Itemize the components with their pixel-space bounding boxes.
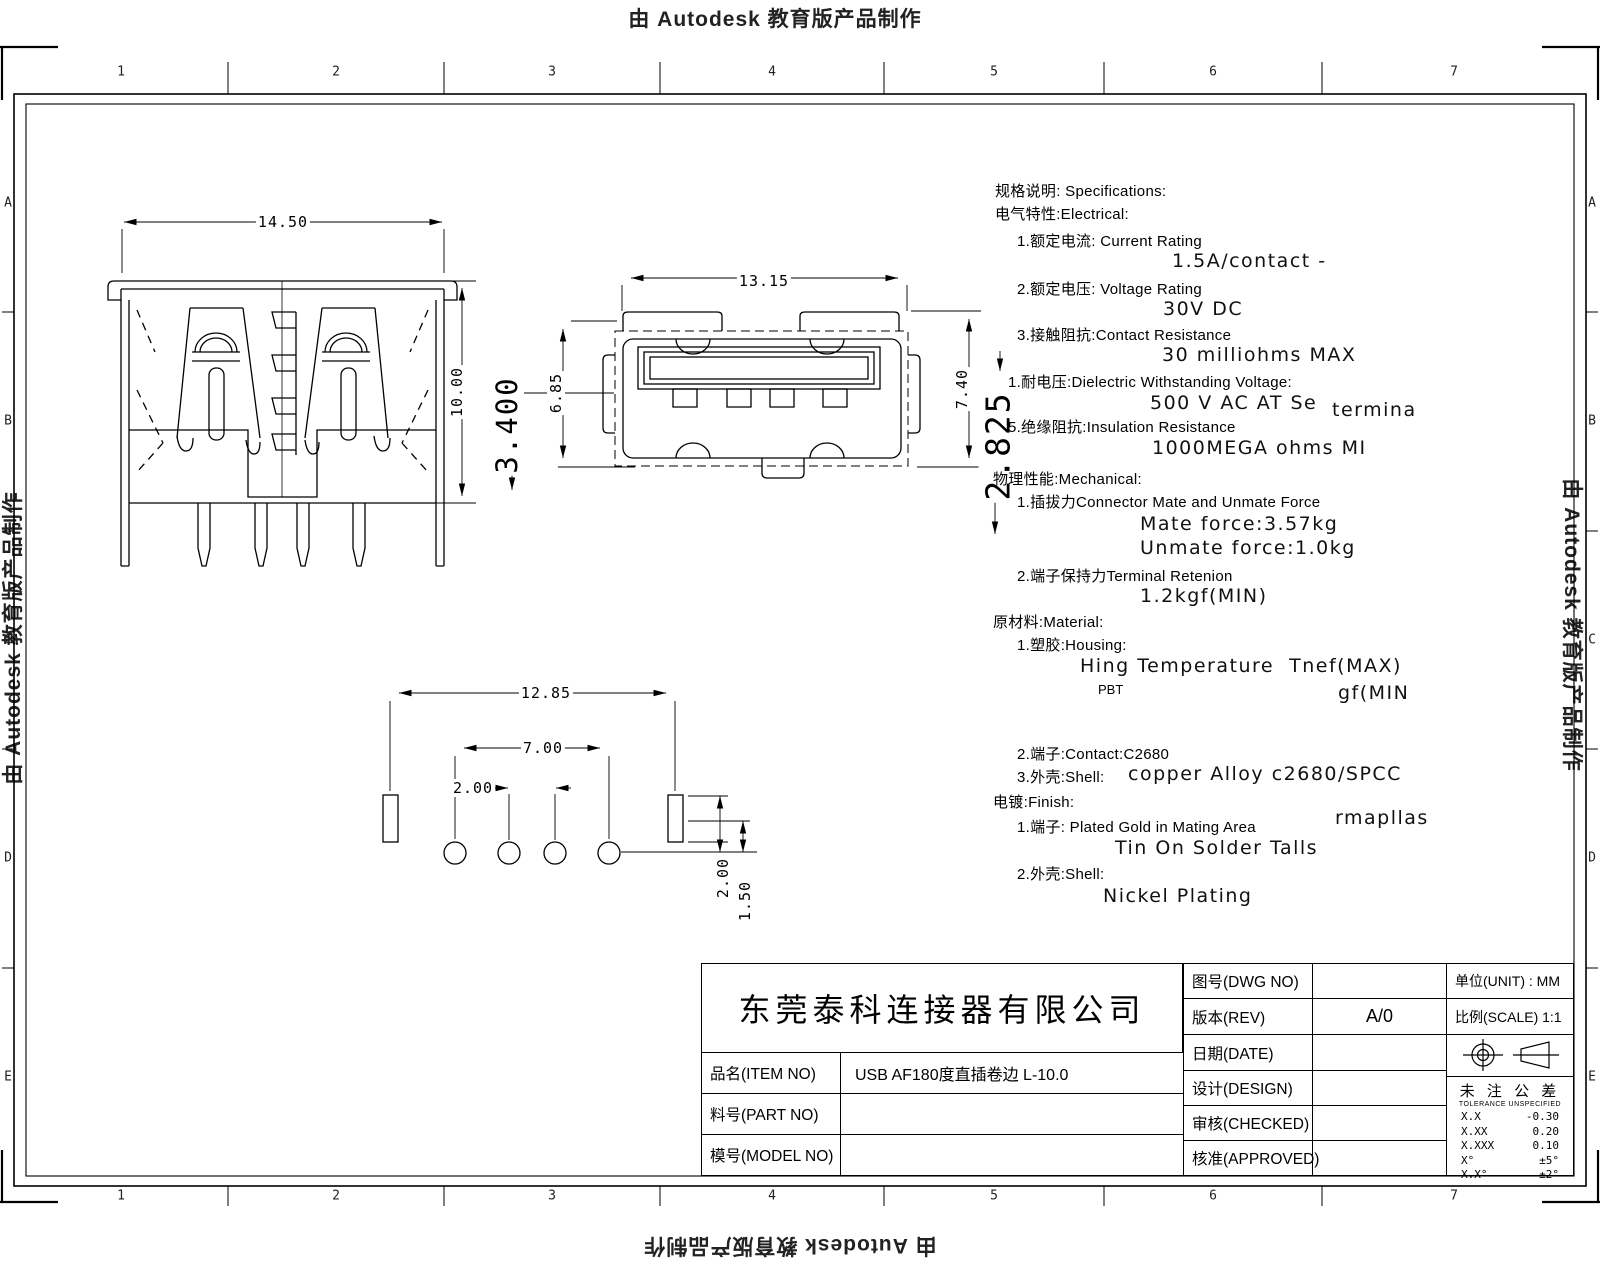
part-no-label-cell: 料号(PART NO)	[701, 1093, 841, 1135]
tolerance-row: X.X-0.30	[1447, 1110, 1573, 1125]
model-no-label: 模号(MODEL NO)	[702, 1144, 833, 1166]
spec-line: 2.外壳:Shell:	[1017, 863, 1105, 884]
checked-label-cell: 审核(CHECKED)	[1183, 1105, 1313, 1141]
spec-line: 1.额定电流: Current Rating	[1017, 230, 1202, 251]
tolerance-subtitle: TOLERANCE UNSPECIFIED	[1447, 1101, 1573, 1108]
dim-front-width: 14.50	[256, 213, 310, 231]
date-value	[1312, 1034, 1447, 1071]
part-no-value	[840, 1093, 1184, 1135]
spec-line: 5.绝缘阻抗:Insulation Resistance	[1008, 416, 1236, 437]
dimension-lines	[122, 222, 1000, 852]
model-no-label-cell: 模号(MODEL NO)	[701, 1134, 841, 1176]
spec-mechanical-header: 物理性能:Mechanical:	[993, 468, 1142, 489]
spec-value: PBT	[1098, 682, 1123, 697]
zone-col-top-7: 7	[1450, 65, 1458, 80]
footprint-view	[383, 795, 683, 864]
dim-front-height: 10.00	[448, 365, 466, 419]
zone-col-top-5: 5	[990, 65, 998, 80]
item-no-label-cell: 品名(ITEM NO)	[701, 1052, 841, 1094]
tolerance-cell: 未 注 公 差 TOLERANCE UNSPECIFIED X.X-0.30 X…	[1446, 1076, 1574, 1176]
zone-row-right-d: D	[1588, 851, 1596, 866]
dim-face-height-right: 7.40	[953, 367, 971, 411]
spec-line: 1.端子: Plated Gold in Mating Area	[1017, 816, 1256, 837]
checked-label: 审核(CHECKED)	[1184, 1112, 1309, 1134]
design-value	[1312, 1070, 1447, 1106]
zone-row-left-c: C	[4, 633, 12, 648]
spec-value-fragment: termina	[1332, 399, 1417, 421]
dwg-no-label: 图号(DWG NO)	[1184, 970, 1299, 992]
spec-line: 2.额定电压: Voltage Rating	[1017, 278, 1202, 299]
company-name: 东莞泰科连接器有限公司	[701, 963, 1183, 1053]
spec-value: 500 V AC AT Se	[1150, 392, 1317, 414]
cad-drawing-page: { "banner": { "text": "由 Autodesk 教育版产品制…	[0, 0, 1600, 1280]
spec-value-fragment: rmapllas	[1335, 807, 1429, 829]
tolerance-row: X°±5°	[1447, 1154, 1573, 1169]
spec-line: 3.接触阻抗:Contact Resistance	[1017, 324, 1231, 345]
design-label-cell: 设计(DESIGN)	[1183, 1070, 1313, 1106]
approved-value	[1312, 1140, 1447, 1176]
zone-col-bottom-7: 7	[1450, 1189, 1458, 1204]
scale-label: 比例(SCALE) 1:1	[1447, 1007, 1562, 1027]
spec-title: 规格说明: Specifications:	[995, 180, 1166, 201]
approved-label-cell: 核准(APPROVED)	[1183, 1140, 1313, 1176]
spec-line: 1.插拔力Connector Mate and Unmate Force	[1017, 491, 1320, 512]
dim-face-height-left: 6.85	[547, 371, 565, 415]
spec-line: 1.塑胶:Housing:	[1017, 634, 1127, 655]
tolerance-title: 未 注 公 差	[1447, 1080, 1573, 1101]
design-label: 设计(DESIGN)	[1184, 1077, 1293, 1099]
zone-col-top-4: 4	[768, 65, 776, 80]
unit-label: 单位(UNIT) : MM	[1447, 971, 1560, 991]
zone-row-left-d: D	[4, 851, 12, 866]
model-no-value	[840, 1134, 1184, 1176]
tolerance-row: X.XXX0.10	[1447, 1139, 1573, 1154]
spec-electrical-header: 电气特性:Electrical:	[995, 203, 1129, 224]
zone-col-top-3: 3	[548, 65, 556, 80]
front-view	[108, 281, 457, 566]
spec-value: Nickel Plating	[1103, 885, 1252, 907]
zone-col-top-2: 2	[332, 65, 340, 80]
scale-cell: 比例(SCALE) 1:1	[1446, 998, 1574, 1035]
spec-line: 2.端子:Contact:C2680	[1017, 743, 1169, 764]
spec-value: Unmate force:1.0kg	[1140, 537, 1356, 559]
zone-col-bottom-1: 1	[117, 1189, 125, 1204]
part-no-label: 料号(PART NO)	[702, 1103, 819, 1125]
tolerance-row: X.XX0.20	[1447, 1125, 1573, 1140]
projection-symbol-cell	[1446, 1034, 1574, 1077]
projection-symbol-icon	[1447, 1035, 1567, 1075]
date-label: 日期(DATE)	[1184, 1042, 1274, 1064]
zone-col-bottom-3: 3	[548, 1189, 556, 1204]
spec-value: Hing Temperature Tnef(MAX)	[1080, 655, 1402, 677]
tolerance-row: X.X°±2°	[1447, 1168, 1573, 1183]
item-no-value: USB AF180度直插卷边 L-10.0	[840, 1052, 1184, 1094]
dim-front-aux: 3.400	[490, 374, 524, 475]
zone-row-right-e: E	[1588, 1070, 1596, 1085]
zone-col-bottom-6: 6	[1209, 1189, 1217, 1204]
dim-pin-pitch: 2.00	[451, 779, 495, 797]
zone-row-right-a: A	[1588, 196, 1596, 211]
dim-pin-slot: 2.00	[714, 856, 732, 900]
spec-value: 1.5A/contact -	[1172, 250, 1327, 272]
item-no-label: 品名(ITEM NO)	[702, 1062, 816, 1084]
spec-value: 1000MEGA ohms MI	[1152, 437, 1367, 459]
dwg-no-value	[1312, 963, 1447, 999]
spec-value: 30 milliohms MAX	[1162, 344, 1356, 366]
spec-value: Tin On Solder Talls	[1115, 837, 1318, 859]
zone-row-right-c: C	[1588, 633, 1596, 648]
zone-col-bottom-4: 4	[768, 1189, 776, 1204]
face-view	[603, 312, 920, 478]
unit-cell: 单位(UNIT) : MM	[1446, 963, 1574, 999]
spec-finish-header: 电镀:Finish:	[993, 791, 1074, 812]
zone-col-top-6: 6	[1209, 65, 1217, 80]
dim-pin-span: 7.00	[521, 739, 565, 757]
dim-pin-offset: 1.50	[736, 879, 754, 923]
spec-value-fragment: gf(MIN	[1338, 682, 1409, 704]
rev-value: A/0	[1312, 998, 1447, 1035]
zone-row-right-b: B	[1588, 414, 1596, 429]
dim-face-width: 13.15	[737, 272, 791, 290]
rev-label: 版本(REV)	[1184, 1006, 1265, 1028]
spec-line: 3.外壳:Shell:	[1017, 766, 1105, 787]
zone-row-left-e: E	[4, 1070, 12, 1085]
date-label-cell: 日期(DATE)	[1183, 1034, 1313, 1071]
spec-material-header: 原材料:Material:	[993, 611, 1104, 632]
zone-row-left-b: B	[4, 414, 12, 429]
zone-col-bottom-2: 2	[332, 1189, 340, 1204]
spec-value: Mate force:3.57kg	[1140, 513, 1338, 535]
rev-label-cell: 版本(REV)	[1183, 998, 1313, 1035]
spec-value: 1.2kgf(MIN)	[1140, 585, 1268, 607]
spec-line: 1.耐电压:Dielectric Withstanding Voltage:	[1008, 371, 1292, 392]
spec-value: copper Alloy c2680/SPCC	[1128, 763, 1402, 785]
checked-value	[1312, 1105, 1447, 1141]
zone-col-top-1: 1	[117, 65, 125, 80]
dim-pin-overall: 12.85	[519, 684, 573, 702]
dwg-no-label-cell: 图号(DWG NO)	[1183, 963, 1313, 999]
zone-col-bottom-5: 5	[990, 1189, 998, 1204]
spec-line: 2.端子保持力Terminal Retenion	[1017, 565, 1233, 586]
zone-row-left-a: A	[4, 196, 12, 211]
title-block: 东莞泰科连接器有限公司 品名(ITEM NO) USB AF180度直插卷边 L…	[701, 963, 1574, 1176]
approved-label: 核准(APPROVED)	[1184, 1147, 1319, 1169]
spec-value: 30V DC	[1163, 298, 1243, 320]
